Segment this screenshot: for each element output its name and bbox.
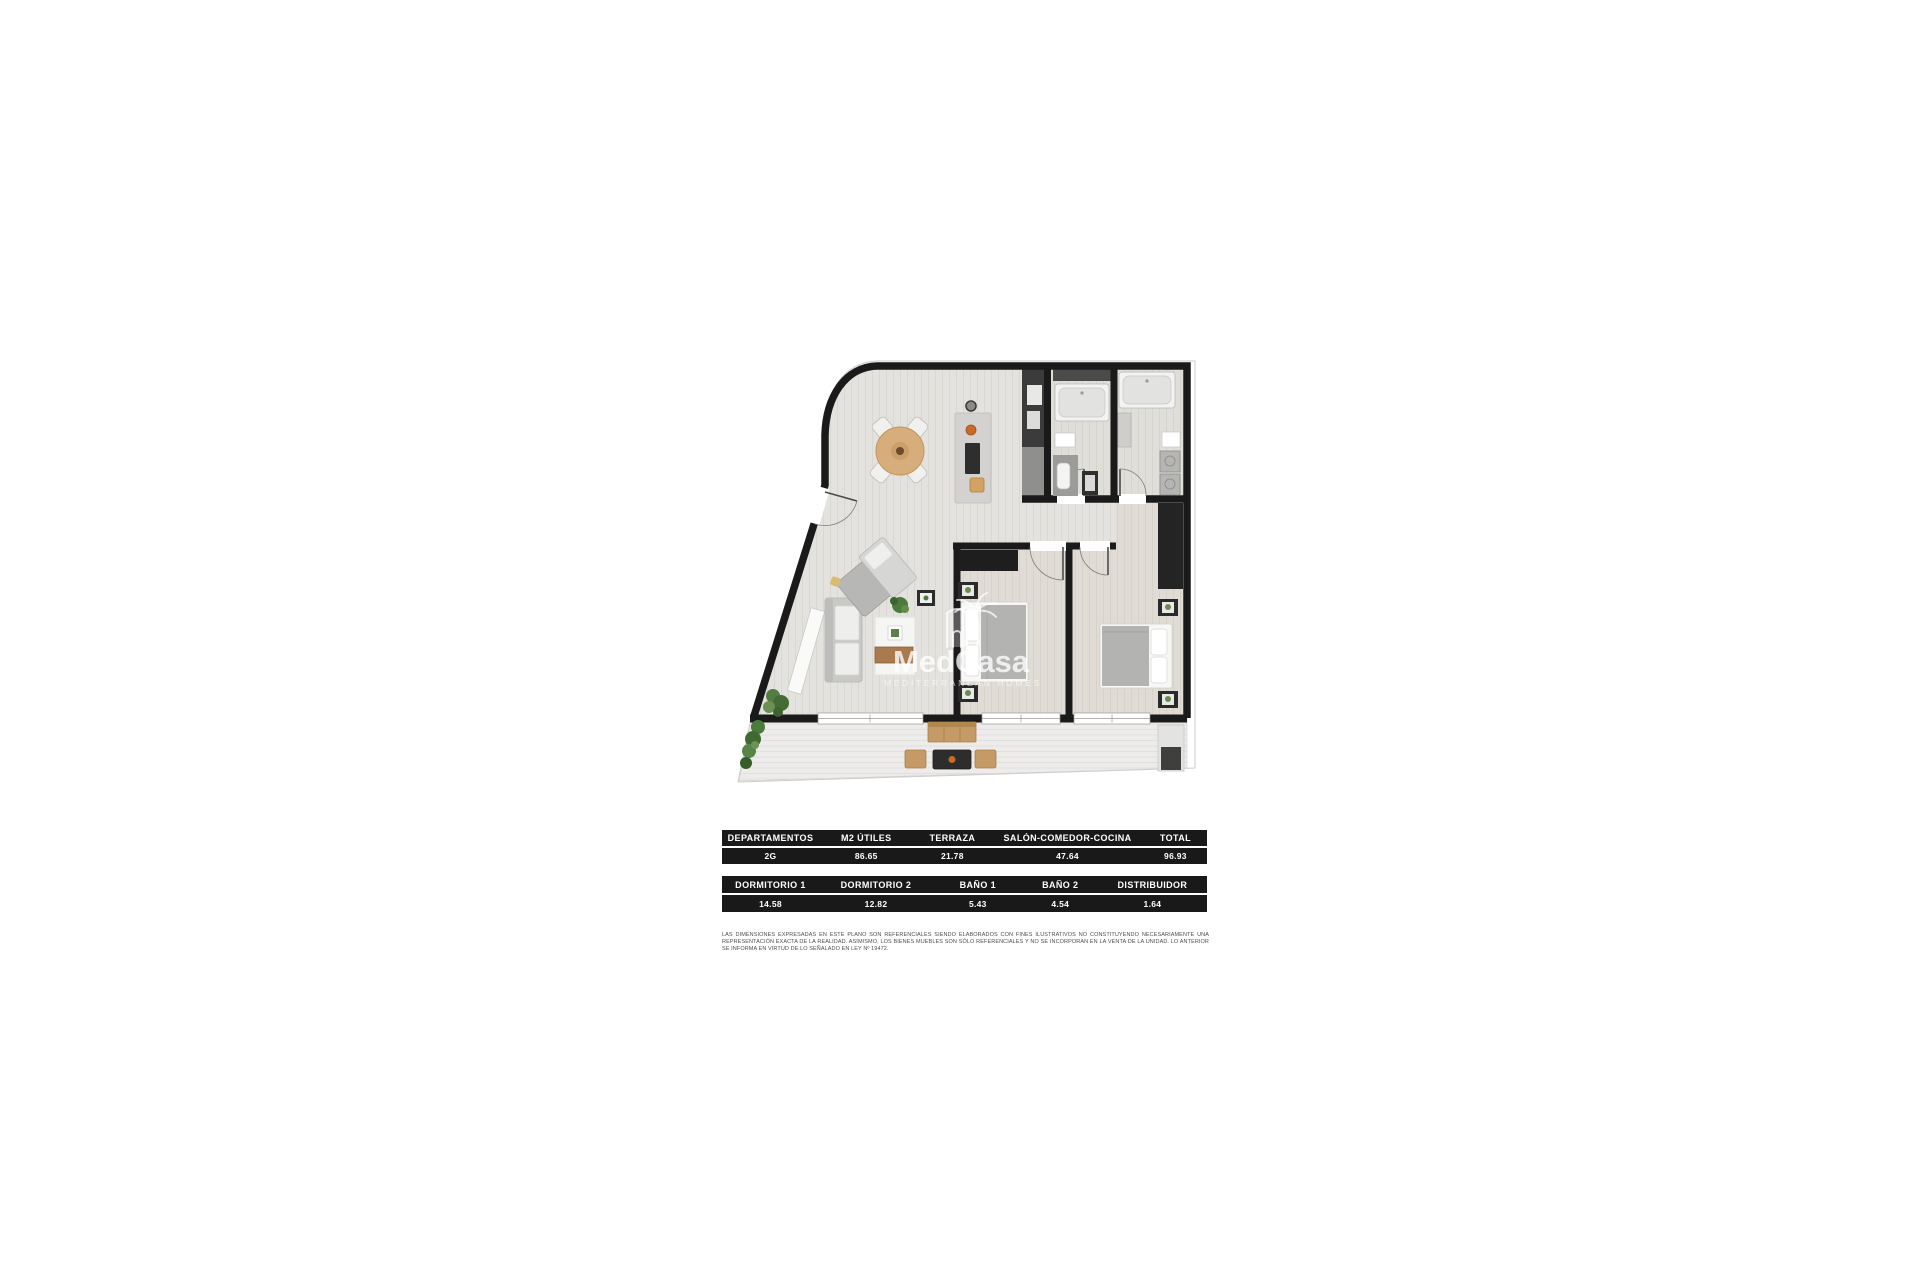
- table-gap: [722, 864, 1207, 876]
- toilet-1: [1057, 463, 1070, 489]
- facade-windows: [818, 713, 1150, 724]
- outdoor-chair: [905, 750, 926, 768]
- shelf: [1162, 432, 1180, 447]
- window-living: [818, 713, 923, 724]
- bathtub-2: [1119, 372, 1175, 408]
- floor-plan-drawing: MedCasa MEDITERRANEAN HOMES: [725, 355, 1215, 800]
- header-cell: M2 ÚTILES: [819, 833, 914, 843]
- wardrobe-bed2: [1158, 503, 1183, 589]
- ac-unit: [1158, 725, 1184, 771]
- fruit-bowl: [966, 425, 976, 435]
- sofa: [825, 598, 862, 682]
- summary-value-row: 2G 86.65 21.78 47.64 96.93: [722, 848, 1207, 864]
- leaning-frame: [917, 590, 935, 606]
- value-cell: 2G: [722, 851, 819, 861]
- bath1-niche: [1053, 368, 1111, 381]
- bed-2: [1100, 624, 1172, 688]
- wardrobe-bed1: [959, 550, 1018, 571]
- rooms-value-row: 14.58 12.82 5.43 4.54 1.64: [722, 895, 1207, 912]
- bath2-cabinet: [1118, 413, 1131, 447]
- rooms-table: DORMITORIO 1 DORMITORIO 2 BAÑO 1 BAÑO 2 …: [722, 876, 1207, 912]
- value-cell: 12.82: [819, 899, 933, 909]
- value-cell: 21.78: [914, 851, 992, 861]
- summary-header-row: DEPARTAMENTOS M2 ÚTILES TERRAZA SALÓN-CO…: [722, 830, 1207, 846]
- window-bedroom1: [982, 713, 1060, 724]
- outdoor-table: [933, 750, 971, 769]
- value-cell: 5.43: [933, 899, 1023, 909]
- kitchen-stool: [970, 478, 984, 492]
- window-bedroom2: [1074, 713, 1150, 724]
- legal-disclaimer: LAS DIMENSIONES EXPRESADAS EN ESTE PLANO…: [722, 932, 1209, 953]
- floor-plan-page: MedCasa MEDITERRANEAN HOMES DEPARTAMENTO…: [0, 0, 1920, 1280]
- cooktop: [965, 443, 980, 474]
- value-cell: 14.58: [722, 899, 819, 909]
- header-cell: TERRAZA: [914, 833, 992, 843]
- bathtub-1: [1055, 384, 1109, 421]
- value-cell: 96.93: [1144, 851, 1207, 861]
- header-cell: DORMITORIO 1: [722, 880, 819, 890]
- header-cell: DORMITORIO 2: [819, 880, 933, 890]
- nightstand: [958, 582, 978, 599]
- header-cell: SALÓN-COMEDOR-COCINA: [991, 833, 1144, 843]
- floor-plan: MedCasa MEDITERRANEAN HOMES: [725, 355, 1215, 800]
- tagline-text: MEDITERRANEAN HOMES: [884, 678, 1042, 688]
- value-cell: 47.64: [991, 851, 1144, 861]
- value-cell: 4.54: [1023, 899, 1098, 909]
- kitchen-island: [955, 401, 991, 503]
- value-cell: 86.65: [819, 851, 914, 861]
- outdoor-chair: [975, 750, 996, 768]
- nightstand: [1158, 599, 1178, 616]
- kitchen-units: [1022, 369, 1046, 497]
- value-cell: 1.64: [1098, 899, 1207, 909]
- pendant-lamp: [966, 401, 976, 411]
- area-tables: DEPARTAMENTOS M2 ÚTILES TERRAZA SALÓN-CO…: [722, 830, 1207, 912]
- nightstand: [1158, 691, 1178, 708]
- header-cell: DISTRIBUIDOR: [1098, 880, 1207, 890]
- header-cell: TOTAL: [1144, 833, 1207, 843]
- header-cell: BAÑO 2: [1023, 880, 1098, 890]
- vanity-1: [1055, 433, 1075, 447]
- header-cell: DEPARTAMENTOS: [722, 833, 819, 843]
- header-cell: BAÑO 1: [933, 880, 1023, 890]
- outdoor-sofa: [928, 722, 976, 742]
- brand-text: MedCasa: [893, 644, 1030, 679]
- summary-table: DEPARTAMENTOS M2 ÚTILES TERRAZA SALÓN-CO…: [722, 830, 1207, 864]
- rooms-header-row: DORMITORIO 1 DORMITORIO 2 BAÑO 1 BAÑO 2 …: [722, 876, 1207, 893]
